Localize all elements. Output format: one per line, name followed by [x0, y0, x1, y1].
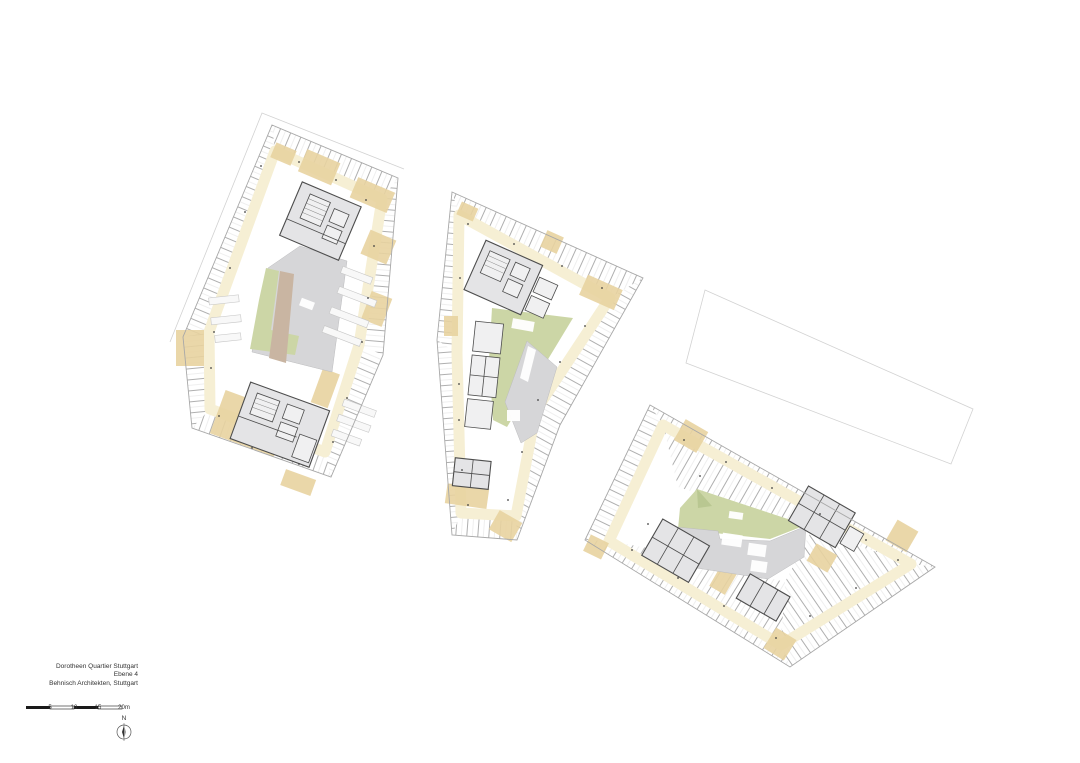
drawing-sheet: Dorotheen Quartier Stuttgart Ebene 4 Beh… [0, 0, 1080, 763]
title-block: Dorotheen Quartier Stuttgart Ebene 4 Beh… [8, 663, 138, 688]
building-west-plan [176, 125, 398, 496]
north-needle-west [122, 726, 124, 739]
architect-label: Behnisch Architekten, Stuttgart [8, 680, 138, 688]
scale-tick-15: 15 [95, 705, 102, 711]
scale-tick-10: 10 [71, 705, 78, 711]
scale-bar-graphic [26, 705, 130, 711]
building-east-plan [583, 405, 935, 667]
north-label: N [122, 715, 127, 722]
north-needle-east [124, 726, 126, 739]
scale-tick-5: 5 [48, 705, 51, 711]
project-title: Dorotheen Quartier Stuttgart [8, 663, 138, 671]
scale-tick-20m: 20m [118, 705, 130, 711]
level-label: Ebene 4 [8, 671, 138, 679]
site-plan-drawing [0, 0, 1080, 763]
north-arrow: N [111, 712, 137, 744]
